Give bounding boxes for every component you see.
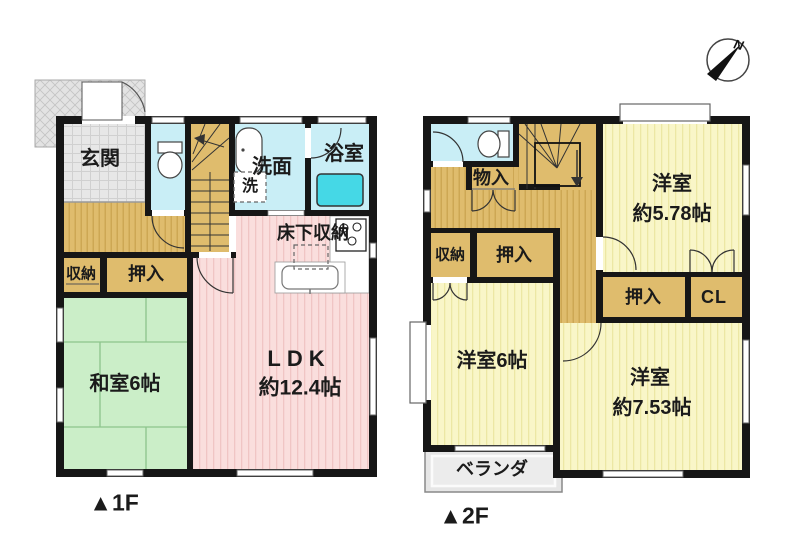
label-veranda: ベランダ xyxy=(456,460,528,478)
label-shuunou-1f: 収納 xyxy=(66,267,96,282)
label-oshiire-2fb: 押入 xyxy=(625,288,661,306)
label-cl: CL xyxy=(701,288,727,306)
label-washitsu: 和室6帖 xyxy=(89,374,160,394)
label-yukashita: 床下収納 xyxy=(277,224,349,242)
label-west753-size: 約7.53帖 xyxy=(613,398,692,418)
label-oshiire-2fa: 押入 xyxy=(496,246,532,264)
label-west578-size: 約5.78帖 xyxy=(633,204,712,224)
label-floor2-tag: ▲2F xyxy=(439,505,489,528)
label-shuunou-2f: 収納 xyxy=(435,248,465,263)
bay-window-left xyxy=(410,322,426,403)
toilet-icon-2f xyxy=(478,131,509,157)
floorplan-canvas: N 玄関 洗面 洗 浴室 床下収納 収納 押入 和室6帖 LDK 約12.4帖 … xyxy=(0,0,800,550)
label-senmen: 洗面 xyxy=(252,157,292,177)
floorplan-svg: N xyxy=(0,0,800,550)
floor2-plan xyxy=(410,104,750,492)
hall-strip-floor xyxy=(560,233,596,323)
label-monoiri: 物入 xyxy=(473,169,509,187)
kitchen-pass-door xyxy=(268,211,304,216)
bathtub-icon xyxy=(317,174,363,206)
label-yokushitsu: 浴室 xyxy=(324,144,364,164)
label-floor1-tag: ▲1F xyxy=(89,492,139,515)
toilet-icon-1f xyxy=(158,142,182,178)
label-west753: 洋室 xyxy=(630,368,670,388)
label-west6: 洋室6帖 xyxy=(456,351,527,371)
label-sen: 洗 xyxy=(242,179,258,195)
label-genkan: 玄関 xyxy=(80,149,120,169)
label-west578: 洋室 xyxy=(652,174,692,194)
label-ldk-size: 約12.4帖 xyxy=(259,378,342,399)
label-oshiire-1f: 押入 xyxy=(128,265,164,283)
west578-floor xyxy=(603,124,742,272)
bay-window-top xyxy=(620,104,710,121)
compass: N xyxy=(707,36,749,81)
label-ldk: LDK xyxy=(267,348,330,370)
